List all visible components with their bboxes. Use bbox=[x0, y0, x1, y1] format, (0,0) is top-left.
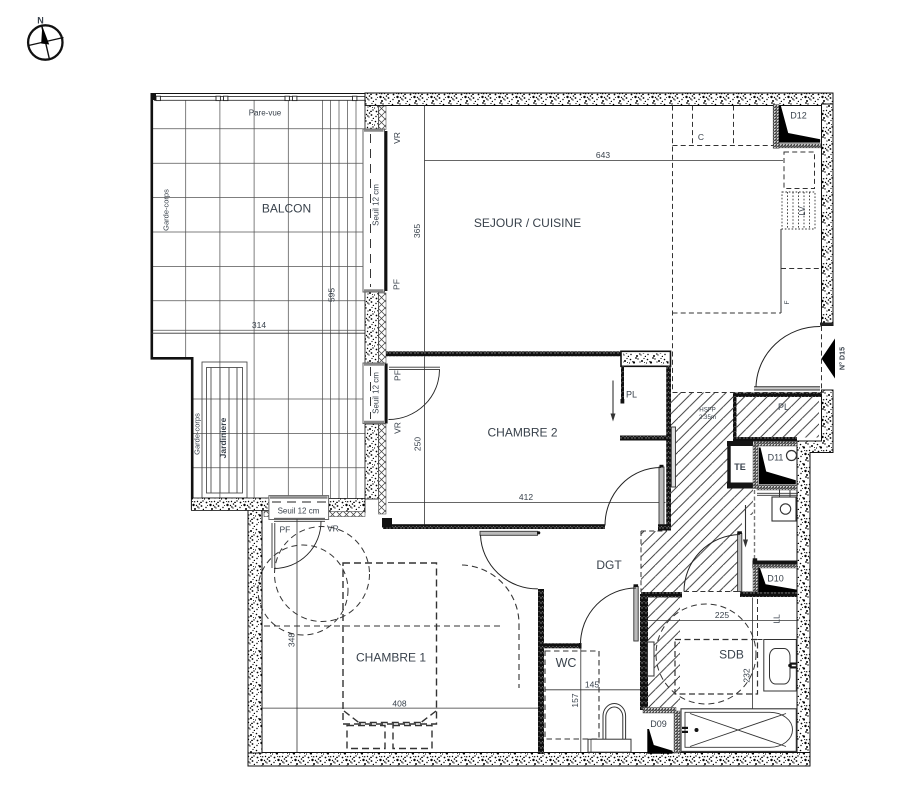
svg-text:CHAMBRE 1: CHAMBRE 1 bbox=[356, 651, 426, 665]
svg-text:643: 643 bbox=[596, 150, 610, 160]
svg-text:PL: PL bbox=[626, 390, 637, 400]
svg-text:F: F bbox=[784, 300, 791, 304]
svg-text:C: C bbox=[698, 132, 704, 142]
svg-text:D12: D12 bbox=[790, 111, 807, 121]
svg-text:HSFP: HSFP bbox=[699, 407, 716, 414]
svg-text:Garde-corps: Garde-corps bbox=[162, 189, 171, 231]
svg-text:250: 250 bbox=[413, 437, 423, 451]
svg-text:Seuil 12 cm: Seuil 12 cm bbox=[372, 184, 381, 226]
svg-text:N: N bbox=[37, 16, 44, 26]
svg-text:225: 225 bbox=[715, 610, 729, 620]
svg-text:232: 232 bbox=[742, 668, 752, 682]
svg-text:D11: D11 bbox=[768, 453, 784, 463]
svg-text:PL: PL bbox=[778, 402, 789, 412]
svg-text:VR: VR bbox=[392, 132, 402, 144]
svg-text:365: 365 bbox=[412, 224, 422, 238]
svg-text:LL: LL bbox=[772, 614, 782, 624]
svg-text:PF: PF bbox=[280, 525, 291, 535]
svg-text:348: 348 bbox=[287, 633, 297, 647]
svg-text:D09: D09 bbox=[650, 719, 667, 729]
svg-text:595: 595 bbox=[327, 288, 337, 302]
svg-text:PF: PF bbox=[392, 279, 402, 290]
svg-text:D10: D10 bbox=[767, 574, 784, 584]
svg-text:Pare-vue: Pare-vue bbox=[249, 109, 282, 118]
svg-text:LV: LV bbox=[798, 206, 807, 216]
svg-text:145: 145 bbox=[585, 680, 599, 690]
svg-text:TE: TE bbox=[734, 462, 746, 472]
svg-text:WC: WC bbox=[556, 656, 577, 670]
svg-text:SEJOUR / CUISINE: SEJOUR / CUISINE bbox=[474, 216, 581, 230]
svg-text:157: 157 bbox=[570, 693, 580, 707]
svg-text:Garde-corps: Garde-corps bbox=[193, 413, 202, 455]
svg-text:BALCON: BALCON bbox=[262, 202, 311, 216]
svg-text:Seuil 12 cm: Seuil 12 cm bbox=[278, 507, 320, 516]
svg-text:VR: VR bbox=[327, 524, 339, 534]
svg-text:Seuil 12 cm: Seuil 12 cm bbox=[372, 372, 381, 414]
svg-text:412: 412 bbox=[519, 492, 533, 502]
svg-text:2.35m: 2.35m bbox=[699, 414, 716, 421]
svg-text:N° D15: N° D15 bbox=[838, 347, 847, 370]
svg-text:DGT: DGT bbox=[596, 558, 622, 572]
svg-text:314: 314 bbox=[252, 320, 266, 330]
svg-text:Jardiniere: Jardiniere bbox=[218, 417, 228, 458]
svg-text:408: 408 bbox=[392, 699, 406, 709]
svg-text:CHAMBRE 2: CHAMBRE 2 bbox=[487, 426, 557, 440]
svg-text:SDB: SDB bbox=[719, 648, 744, 662]
svg-text:VR: VR bbox=[393, 422, 403, 434]
svg-text:PF: PF bbox=[393, 370, 403, 381]
